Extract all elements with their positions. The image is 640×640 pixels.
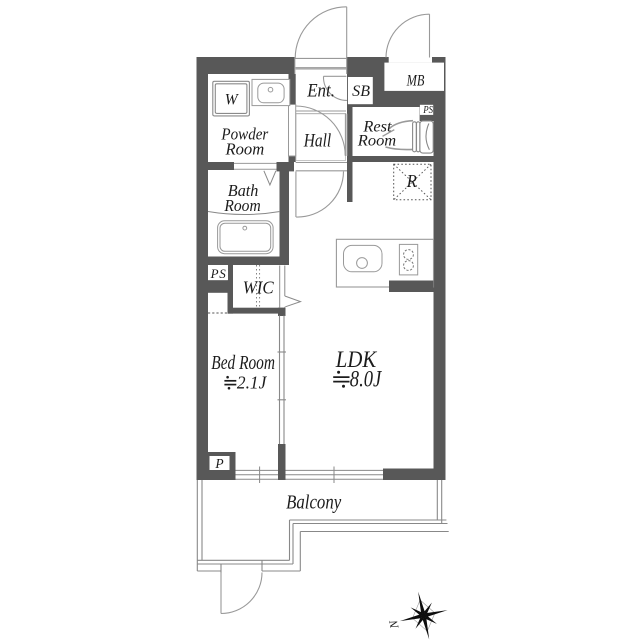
svg-text:Room: Room [223, 196, 260, 215]
svg-text:Bed Room: Bed Room [211, 352, 275, 374]
svg-text:8.0J: 8.0J [350, 367, 383, 392]
svg-text:2.1J: 2.1J [237, 372, 267, 392]
svg-text:Balcony: Balcony [286, 493, 341, 514]
svg-text:MB: MB [406, 73, 425, 90]
svg-text:Room: Room [357, 133, 396, 150]
svg-text:W: W [225, 92, 240, 109]
svg-text:SB: SB [352, 83, 370, 100]
svg-text:Hall: Hall [303, 132, 331, 152]
svg-text:WIC: WIC [243, 278, 275, 298]
svg-text:Room: Room [225, 139, 265, 158]
svg-text:R: R [406, 171, 417, 191]
svg-text:P: P [214, 456, 223, 471]
svg-text:PS: PS [422, 105, 433, 116]
svg-text:Ent.: Ent. [306, 81, 335, 102]
svg-text:PS: PS [210, 266, 227, 281]
